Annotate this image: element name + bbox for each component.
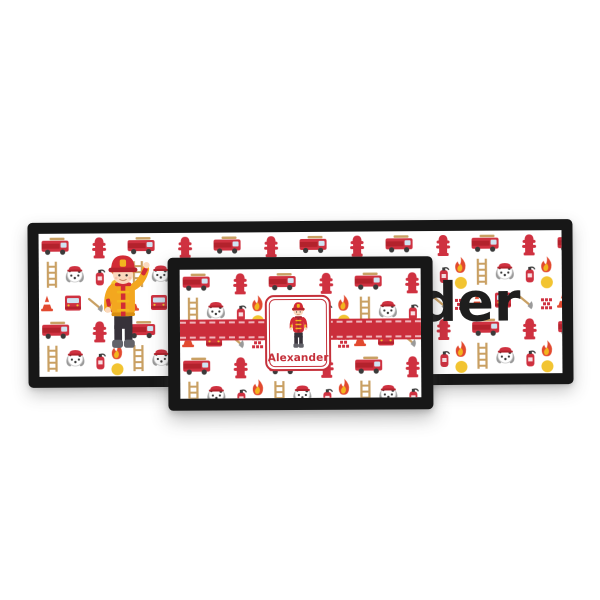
firefighter-boy-icon	[284, 301, 311, 352]
firefighter-boy-icon	[96, 252, 155, 358]
mat-name-text: Alexander	[268, 352, 329, 364]
bar-mat-surface: Alexander	[180, 268, 422, 398]
name-frame: Alexander	[265, 295, 331, 371]
product-photo: Alexander Alexander	[0, 0, 600, 600]
bar-mat: Alexander	[168, 256, 434, 411]
